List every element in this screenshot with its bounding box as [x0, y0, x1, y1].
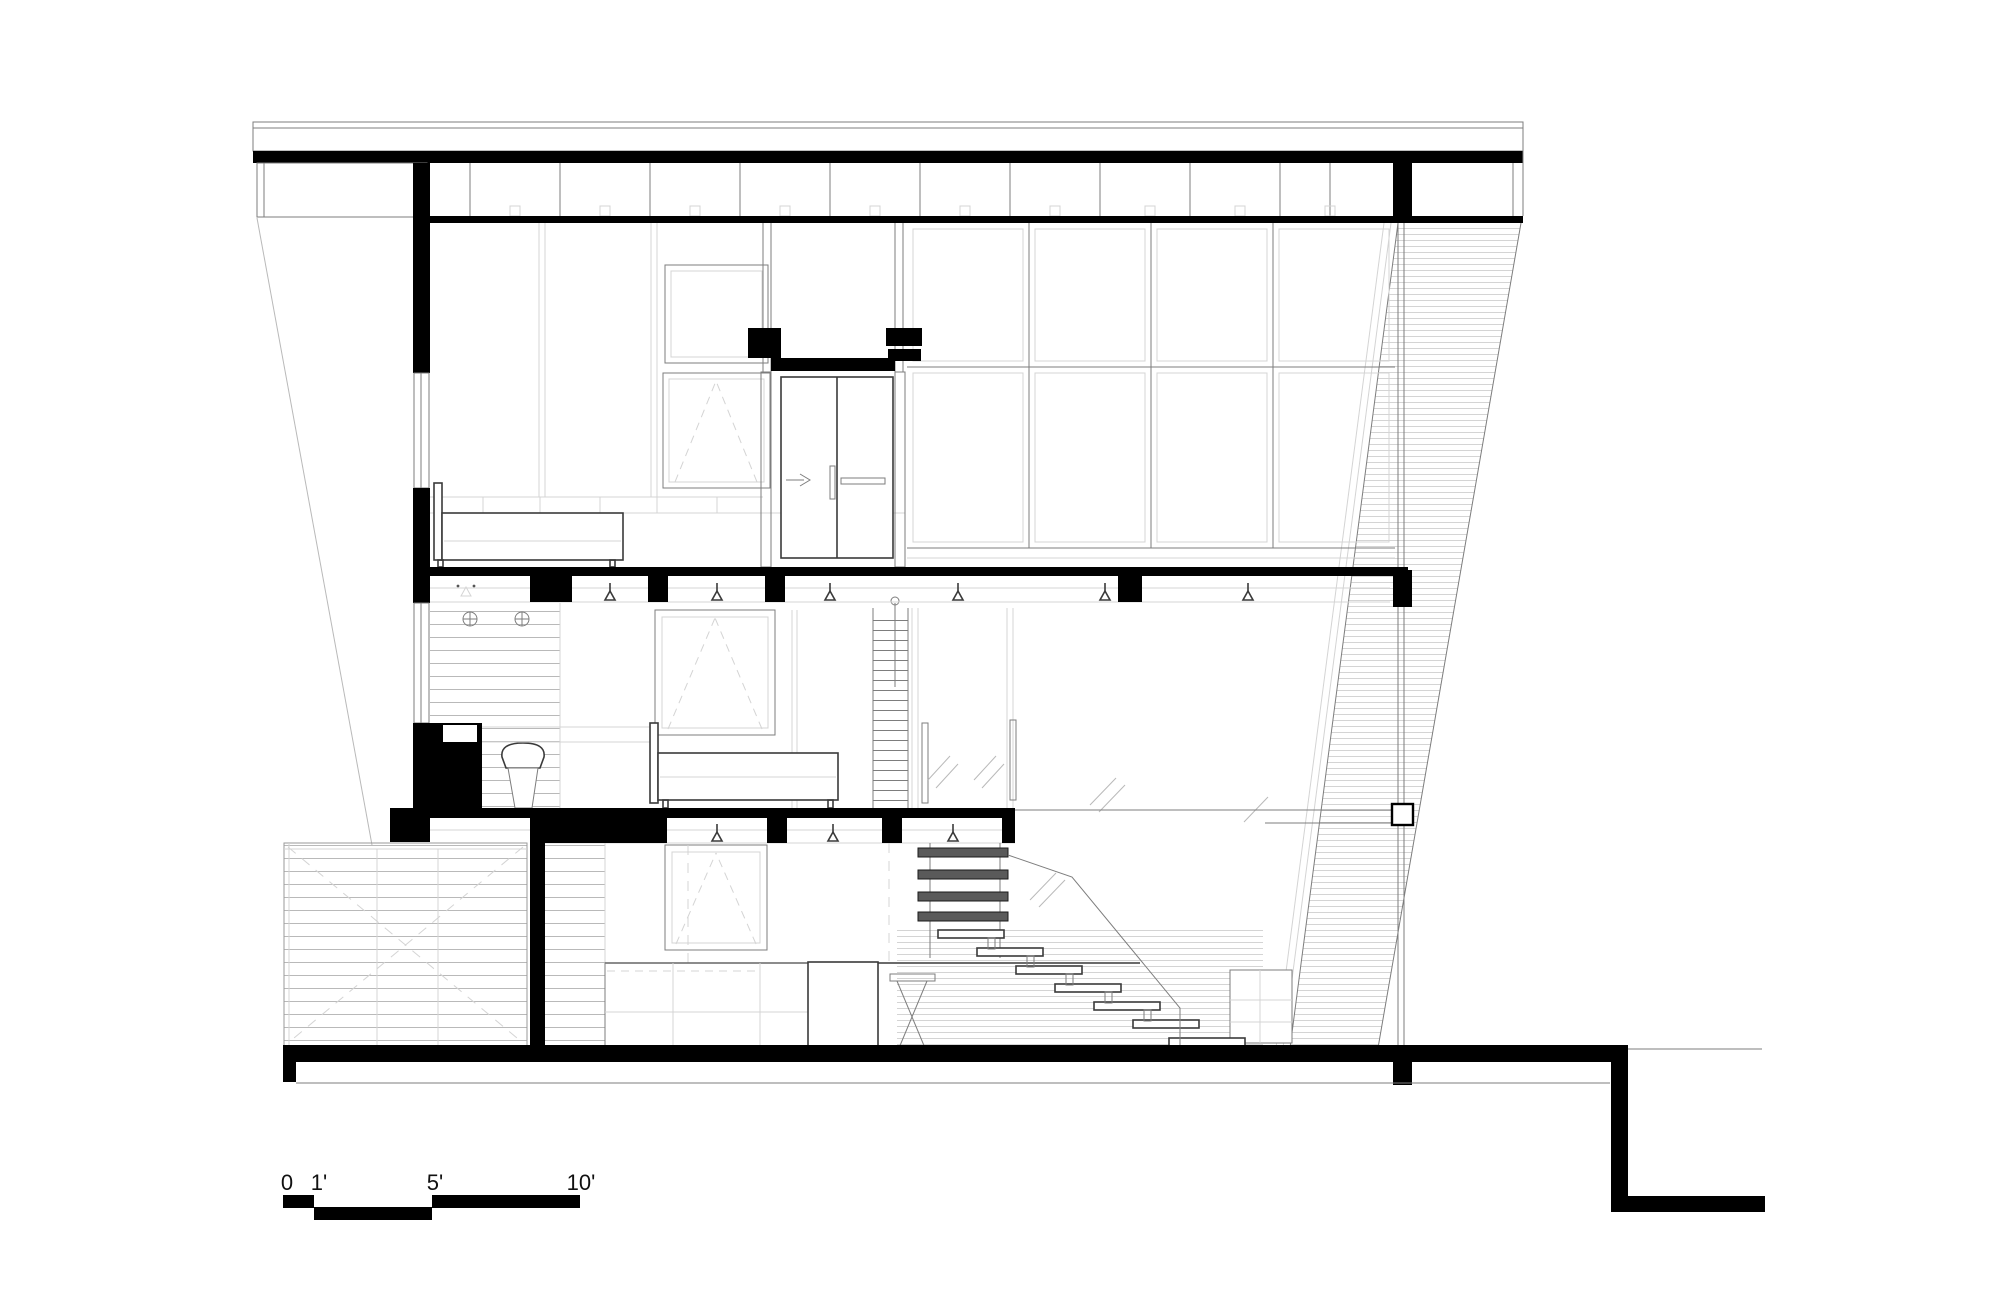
pendant-light-icon	[1243, 583, 1253, 600]
wall-hatch	[1290, 223, 1521, 1048]
cabinet-box	[808, 962, 878, 1048]
ship-ladder	[873, 597, 918, 808]
scale-label-0: 0	[281, 1170, 293, 1195]
pendant-light-icon	[828, 824, 838, 841]
upper-window	[663, 265, 770, 488]
door-jamb	[895, 372, 905, 567]
roof-fascia	[253, 151, 1523, 163]
upper-floor-slab	[430, 567, 1408, 576]
middle-floor-slab	[430, 808, 1015, 818]
bed-middle	[650, 723, 838, 808]
clerestory-sill	[427, 216, 1523, 223]
pendant-light-icon	[1100, 583, 1110, 600]
scale-label-1ft: 1'	[311, 1170, 327, 1195]
middle-floor	[430, 597, 1392, 823]
glass-door-pull	[922, 723, 928, 803]
door-header	[771, 358, 895, 371]
slab-pier	[1393, 1048, 1412, 1085]
retaining-wall	[1611, 1045, 1628, 1212]
scale-label-10ft: 10'	[567, 1170, 596, 1195]
pendant-light-icon	[605, 583, 615, 600]
ground-slab	[283, 1045, 1628, 1062]
shower-valve-icon	[515, 612, 529, 626]
lower-wall	[530, 843, 545, 1045]
left-wall-upper	[413, 163, 430, 373]
middle-cove	[430, 818, 1015, 843]
clerestory-post	[1393, 163, 1412, 223]
sprinkler-icon	[457, 585, 476, 596]
scale-bar: 0 1' 5' 10'	[281, 1170, 595, 1220]
upper-glazing-grid	[907, 223, 1395, 558]
deck-screen	[284, 843, 527, 1048]
sloped-right-wall	[1290, 223, 1521, 1048]
middle-window	[655, 610, 775, 735]
stair-tread	[1094, 1002, 1160, 1010]
bed-upper	[434, 483, 623, 567]
pendant-light-icon	[948, 824, 958, 841]
glass-partition	[792, 608, 1268, 822]
ceiling-symbols	[457, 583, 1253, 841]
stair-tread	[1016, 966, 1082, 974]
tile-wall	[545, 843, 605, 1045]
cabinet-right	[1230, 970, 1292, 1043]
stair-tread	[938, 930, 1004, 938]
lower-floor	[545, 843, 1292, 1048]
stair-tread	[1133, 1020, 1199, 1028]
pendant-light-icon	[825, 583, 835, 600]
window-clips	[510, 206, 1335, 216]
pendant-light-icon	[712, 583, 722, 600]
pendant-light-icon	[953, 583, 963, 600]
pendant-light-icon	[712, 824, 722, 841]
clerestory-band	[257, 122, 1523, 223]
awning-window-opening-symbol	[675, 381, 757, 482]
lower-window	[665, 845, 767, 950]
retaining-wall-footing	[1611, 1196, 1765, 1212]
scale-label-5ft: 5'	[427, 1170, 443, 1195]
shower-valve-icon	[463, 612, 477, 626]
section-drawing: 0 1' 5' 10'	[0, 0, 2000, 1294]
stair-tread	[977, 948, 1043, 956]
door-header-block	[748, 328, 781, 358]
sliding-door	[761, 223, 905, 567]
bed-headboard	[434, 483, 442, 560]
section-drawing-canvas: 0 1' 5' 10'	[0, 0, 2000, 1294]
door-header-block	[886, 328, 922, 346]
column-node	[1392, 804, 1413, 825]
bed-headboard	[650, 723, 658, 803]
middle-slab-nose	[390, 808, 430, 842]
roof	[253, 122, 1523, 163]
stair-tread	[1055, 984, 1121, 992]
roof-overhang-box	[257, 163, 427, 217]
